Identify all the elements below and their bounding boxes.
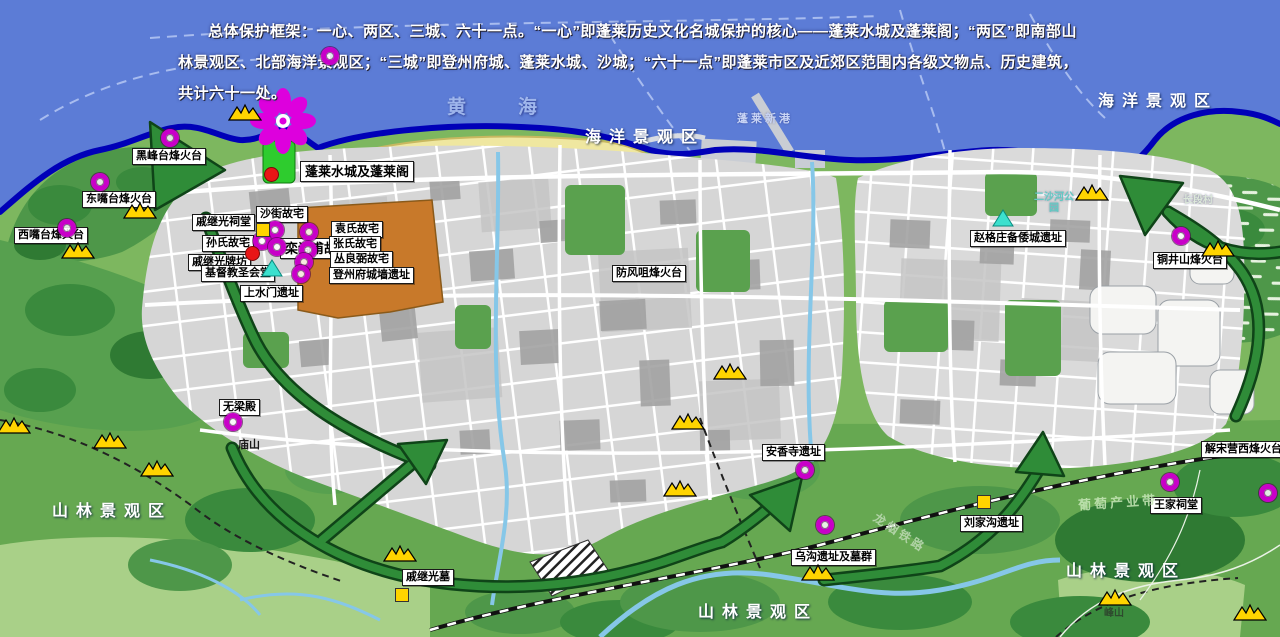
heritage-ring-marker — [816, 516, 834, 534]
mountain-icon — [383, 543, 417, 563]
red-dot-marker — [264, 167, 279, 182]
heritage-ring-marker — [268, 238, 286, 256]
site-label-xiesongying: 解宋营西烽火台 — [1201, 441, 1280, 458]
mountain-icon — [671, 411, 705, 431]
heritage-ring-marker — [292, 265, 310, 283]
site-label-shajie: 沙街故宅 — [256, 206, 308, 223]
site-label-liujiagou: 刘家沟遗址 — [960, 515, 1023, 532]
site-label-beacon-hei: 黑峰台烽火台 — [132, 148, 206, 165]
site-label-qijiguang-tomb: 戚继光墓 — [402, 569, 454, 586]
heritage-ring-marker — [91, 173, 109, 191]
mountain-icon — [123, 200, 157, 220]
site-label-qijiguang-shrine: 戚继光祠堂 — [192, 214, 255, 231]
forest-zone-label-south: 山林景观区 — [698, 598, 818, 622]
site-label-anxiangsi: 安香寺遗址 — [762, 444, 825, 461]
ershahe-park-label: 二沙河公园 — [1030, 192, 1078, 214]
yellow-square-marker — [395, 588, 409, 602]
marine-zone-label-east: 海洋景观区 — [1098, 87, 1218, 111]
triangle-marker — [991, 208, 1015, 228]
mountain-icon — [801, 562, 835, 582]
mountain-icon — [61, 240, 95, 260]
heritage-ring-marker — [1161, 473, 1179, 491]
mountain-icon — [1201, 238, 1235, 258]
mountain-icon — [1098, 587, 1132, 607]
mountain-icon — [1075, 182, 1109, 202]
forest-zone-label-west: 山林景观区 — [52, 497, 172, 521]
yellow-square-marker — [977, 495, 991, 509]
penglai-protection-map: 总体保护框架：一心、两区、三城、六十一点。“一心”即蓬莱历史文化名城保护的核心—… — [0, 0, 1280, 637]
changduancun-label: 长段村 — [1183, 191, 1213, 206]
triangle-marker — [260, 258, 284, 278]
site-label-water-city: 蓬莱水城及蓬莱阁 — [300, 161, 414, 182]
mountain-icon — [0, 415, 31, 435]
yellow-sea-label: 黄海 — [447, 92, 589, 119]
site-label-shangshuimen: 上水门遗址 — [240, 285, 303, 302]
mountain-icon — [1233, 602, 1267, 622]
mountain-icon — [93, 430, 127, 450]
heritage-ring-marker — [321, 47, 339, 65]
site-label-fangfengju: 防风咀烽火台 — [612, 265, 686, 282]
marine-zone-label-center: 海洋景观区 — [585, 123, 705, 147]
mountain-icon — [228, 102, 262, 122]
heritage-ring-marker — [224, 413, 242, 431]
overview-text: 总体保护框架：一心、两区、三城、六十一点。“一心”即蓬莱历史文化名城保护的核心—… — [178, 16, 1090, 109]
red-dot-marker — [245, 246, 260, 261]
site-label-wuliangdian: 无梁殿 — [219, 399, 260, 416]
mountain-icon — [663, 478, 697, 498]
heritage-ring-marker — [161, 129, 179, 147]
heritage-ring-marker — [58, 219, 76, 237]
heritage-ring-marker — [1259, 484, 1277, 502]
site-label-zhaogezhuang: 赵格庄备倭城遗址 — [970, 230, 1066, 247]
heritage-ring-marker — [796, 461, 814, 479]
mountain-icon — [140, 458, 174, 478]
heritage-ring-marker — [300, 223, 318, 241]
yellow-square-marker — [256, 223, 270, 237]
mountain-icon — [713, 361, 747, 381]
heritage-ring-marker — [1172, 227, 1190, 245]
miaoshan-label: 庙山 — [238, 436, 260, 452]
new-port-label: 蓬莱新港 — [737, 110, 793, 126]
site-label-city-wall: 登州府城墙遗址 — [329, 267, 414, 284]
forest-zone-label-southeast: 山林景观区 — [1066, 557, 1186, 581]
site-label-congliangbi: 丛良弼故宅 — [330, 251, 393, 268]
